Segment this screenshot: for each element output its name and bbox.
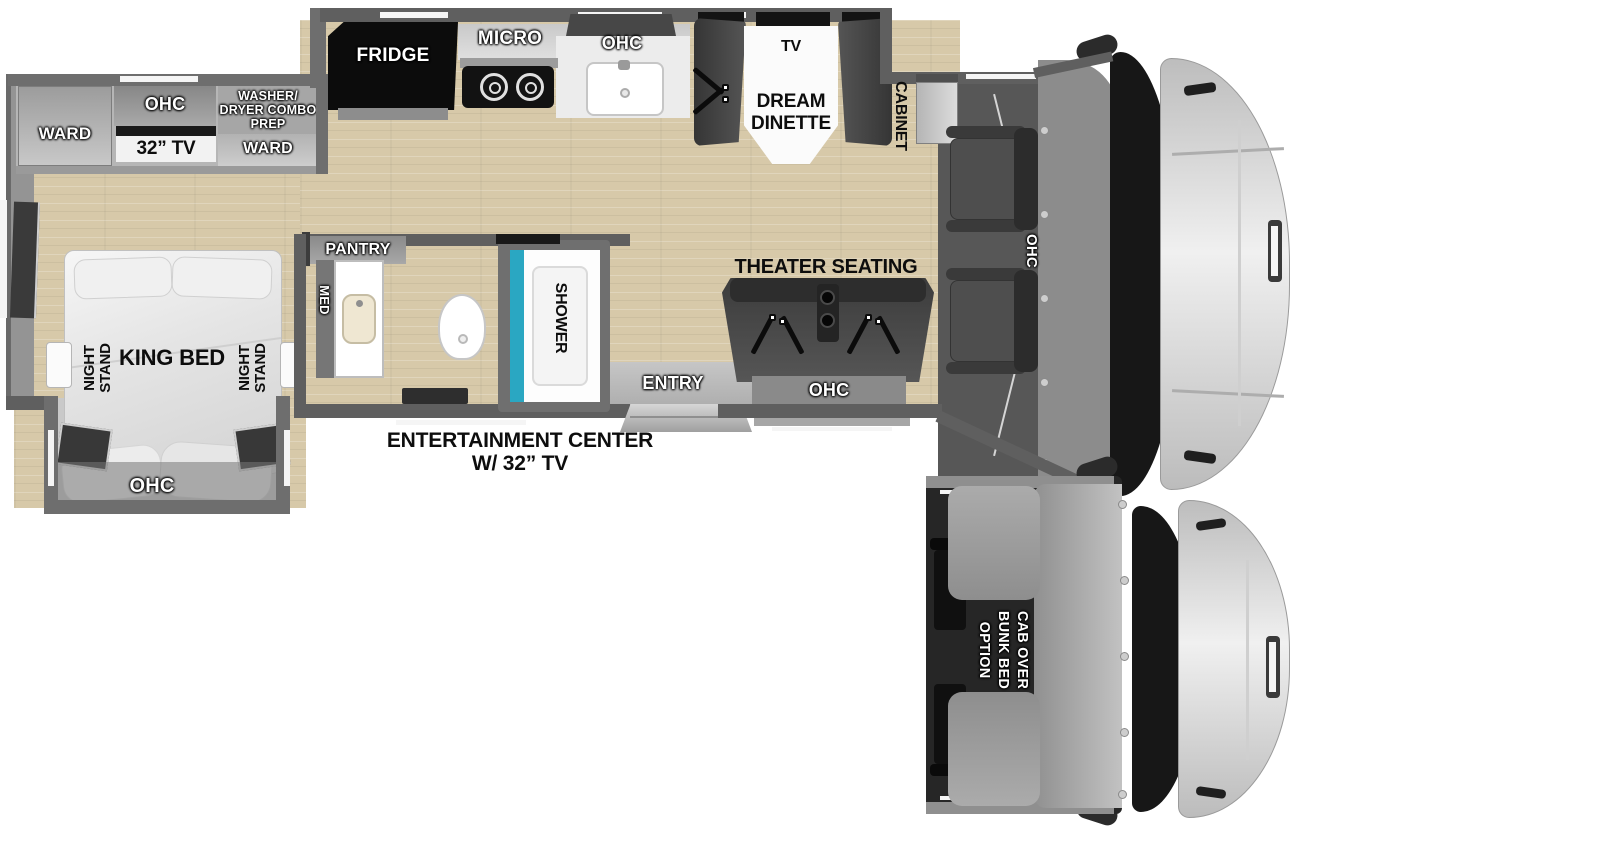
washer-prep-line3: PREP [251,117,286,131]
dash-band [1038,60,1118,496]
rivet [1040,126,1049,135]
bunk-bed-tab-top [948,486,1040,600]
toilet-drain [458,334,468,344]
bath-exterior-slit [396,420,526,425]
cupholder [820,290,835,305]
bedroom-tv-bar [116,126,216,136]
option-hood-crease [1246,560,1249,760]
dinette-window-bar [756,12,830,26]
bunk-bed-main [1034,484,1122,808]
burner-right [516,73,544,101]
vanity-faucet [356,300,363,307]
seatbelt-strap [692,87,724,115]
seatbelt-buckle [722,96,729,103]
option-headlight-slit [1269,642,1276,692]
seatbelt-buckle [769,314,776,321]
headlight-slit [1271,226,1278,276]
dinette-label: DREAM DINETTE [744,90,838,136]
window-slit-1 [380,12,448,18]
bed-slide-slit-right [284,430,290,486]
cupholder [820,313,835,328]
washer-prep-label: WASHER/ DRYER COMBO PREP [218,86,318,134]
dinette-line2: DINETTE [751,113,831,135]
seatbelt-buckle [875,318,882,325]
chair-cushion [950,280,1022,362]
seatbelt-buckle [722,84,729,91]
seatbelt-buckle [865,314,872,321]
dinette-seatbelt-icon [696,60,740,120]
faucet [618,60,630,70]
theater-exterior-slit [772,427,892,431]
pantry-label: PANTRY [310,240,406,260]
med-label: MED [317,271,333,329]
seatbelt-strap [750,315,774,354]
bed-slide-slit-left [48,430,54,486]
fridge-shelf [338,108,448,120]
cabinet-label: CABINET [891,61,909,171]
toilet [438,294,486,360]
bed-slide-ohc-label: OHC [92,476,212,496]
seatbelt-buckle [779,318,786,325]
rivet [1040,294,1049,303]
chair-cushion [950,138,1022,220]
rear-window-slit [0,200,7,318]
bathroom-left-wall [294,234,306,418]
bed-slide-wall-bottom [44,500,290,514]
burner-left [480,73,508,101]
rivet [1120,576,1129,585]
washer-prep-line1: WASHER/ [238,89,298,103]
rivet [1118,790,1127,799]
nightstand-left-line1: NIGHT [82,345,98,391]
rv-floorplan-canvas: WARD OHC 32” TV WASHER/ DRYER COMBO PREP… [0,0,1600,844]
micro-label: MICRO [460,28,560,50]
theater-seating-label: THEATER SEATING [726,256,926,278]
wardrobe-slide-lip [16,166,318,174]
nightstand-left [46,342,72,388]
ward-left-label: WARD [18,124,112,144]
theater-seatbelt-right [848,306,900,358]
cab-over-bunk-option-drawing: CAB OVER BUNK BED OPTION [900,450,1320,844]
rear-window [10,202,40,319]
bedroom-ohc-label: OHC [114,94,216,114]
cab-over-bunk-line1: CAB OVER [1013,611,1032,689]
captain-chair-passenger [944,268,1040,376]
king-bed-label: KING BED [100,346,244,370]
kitchen-ohc-label: OHC [572,32,672,54]
theater-ohc-label: OHC [752,380,906,400]
dinette-line1: DREAM [757,91,826,113]
chair-backrest [1014,270,1038,372]
entry-label: ENTRY [628,372,718,394]
nightstand-right-line2: STAND [253,343,269,393]
cab-window-slit [966,74,1036,79]
bedroom-window-slit [120,76,198,82]
entertainment-caption-line2: W/ 32” TV [472,452,568,475]
pillow-right [171,256,272,299]
cab-over-bunk-label: CAB OVER BUNK BED OPTION [974,594,1032,706]
rivet [1118,500,1127,509]
ward-right-label: WARD [218,140,318,158]
cab-over-bunk-line2: BUNK BED [994,611,1013,689]
rivet [1040,210,1049,219]
rivet [1120,652,1129,661]
rivet [1040,378,1049,387]
theater-exterior-trim [754,418,910,426]
captain-chair-driver [944,126,1040,234]
theater-seatbelt-left [752,306,804,358]
shower-door-bar [496,234,560,244]
pillow-left [73,256,172,299]
fridge-label: FRIDGE [330,46,456,66]
shower-teal-band [510,250,524,402]
seatbelt-strap [846,315,870,354]
rivet [1120,728,1129,737]
entertainment-caption-line1: ENTERTAINMENT CENTER [387,429,653,452]
cab-over-bunk-line3: OPTION [975,622,994,679]
washer-prep-line2: DRYER COMBO [220,103,317,117]
bedroom-tv-label: 32” TV [116,139,216,159]
entertainment-center-unit [402,388,468,404]
chair-backrest [1014,128,1038,230]
shower-label: SHOWER [551,263,569,373]
bottom-wall-theater [718,404,942,418]
main-floorplan: WARD OHC 32” TV WASHER/ DRYER COMBO PREP… [0,0,1600,530]
entertainment-caption: ENTERTAINMENT CENTER W/ 32” TV [360,428,680,476]
hood-crease [1238,120,1241,426]
wardrobe-slide-end-wall [316,74,328,174]
sink-drain [620,88,630,98]
bunk-bed-tab-bottom [948,692,1040,806]
dinette-tv-label: TV [744,38,838,56]
